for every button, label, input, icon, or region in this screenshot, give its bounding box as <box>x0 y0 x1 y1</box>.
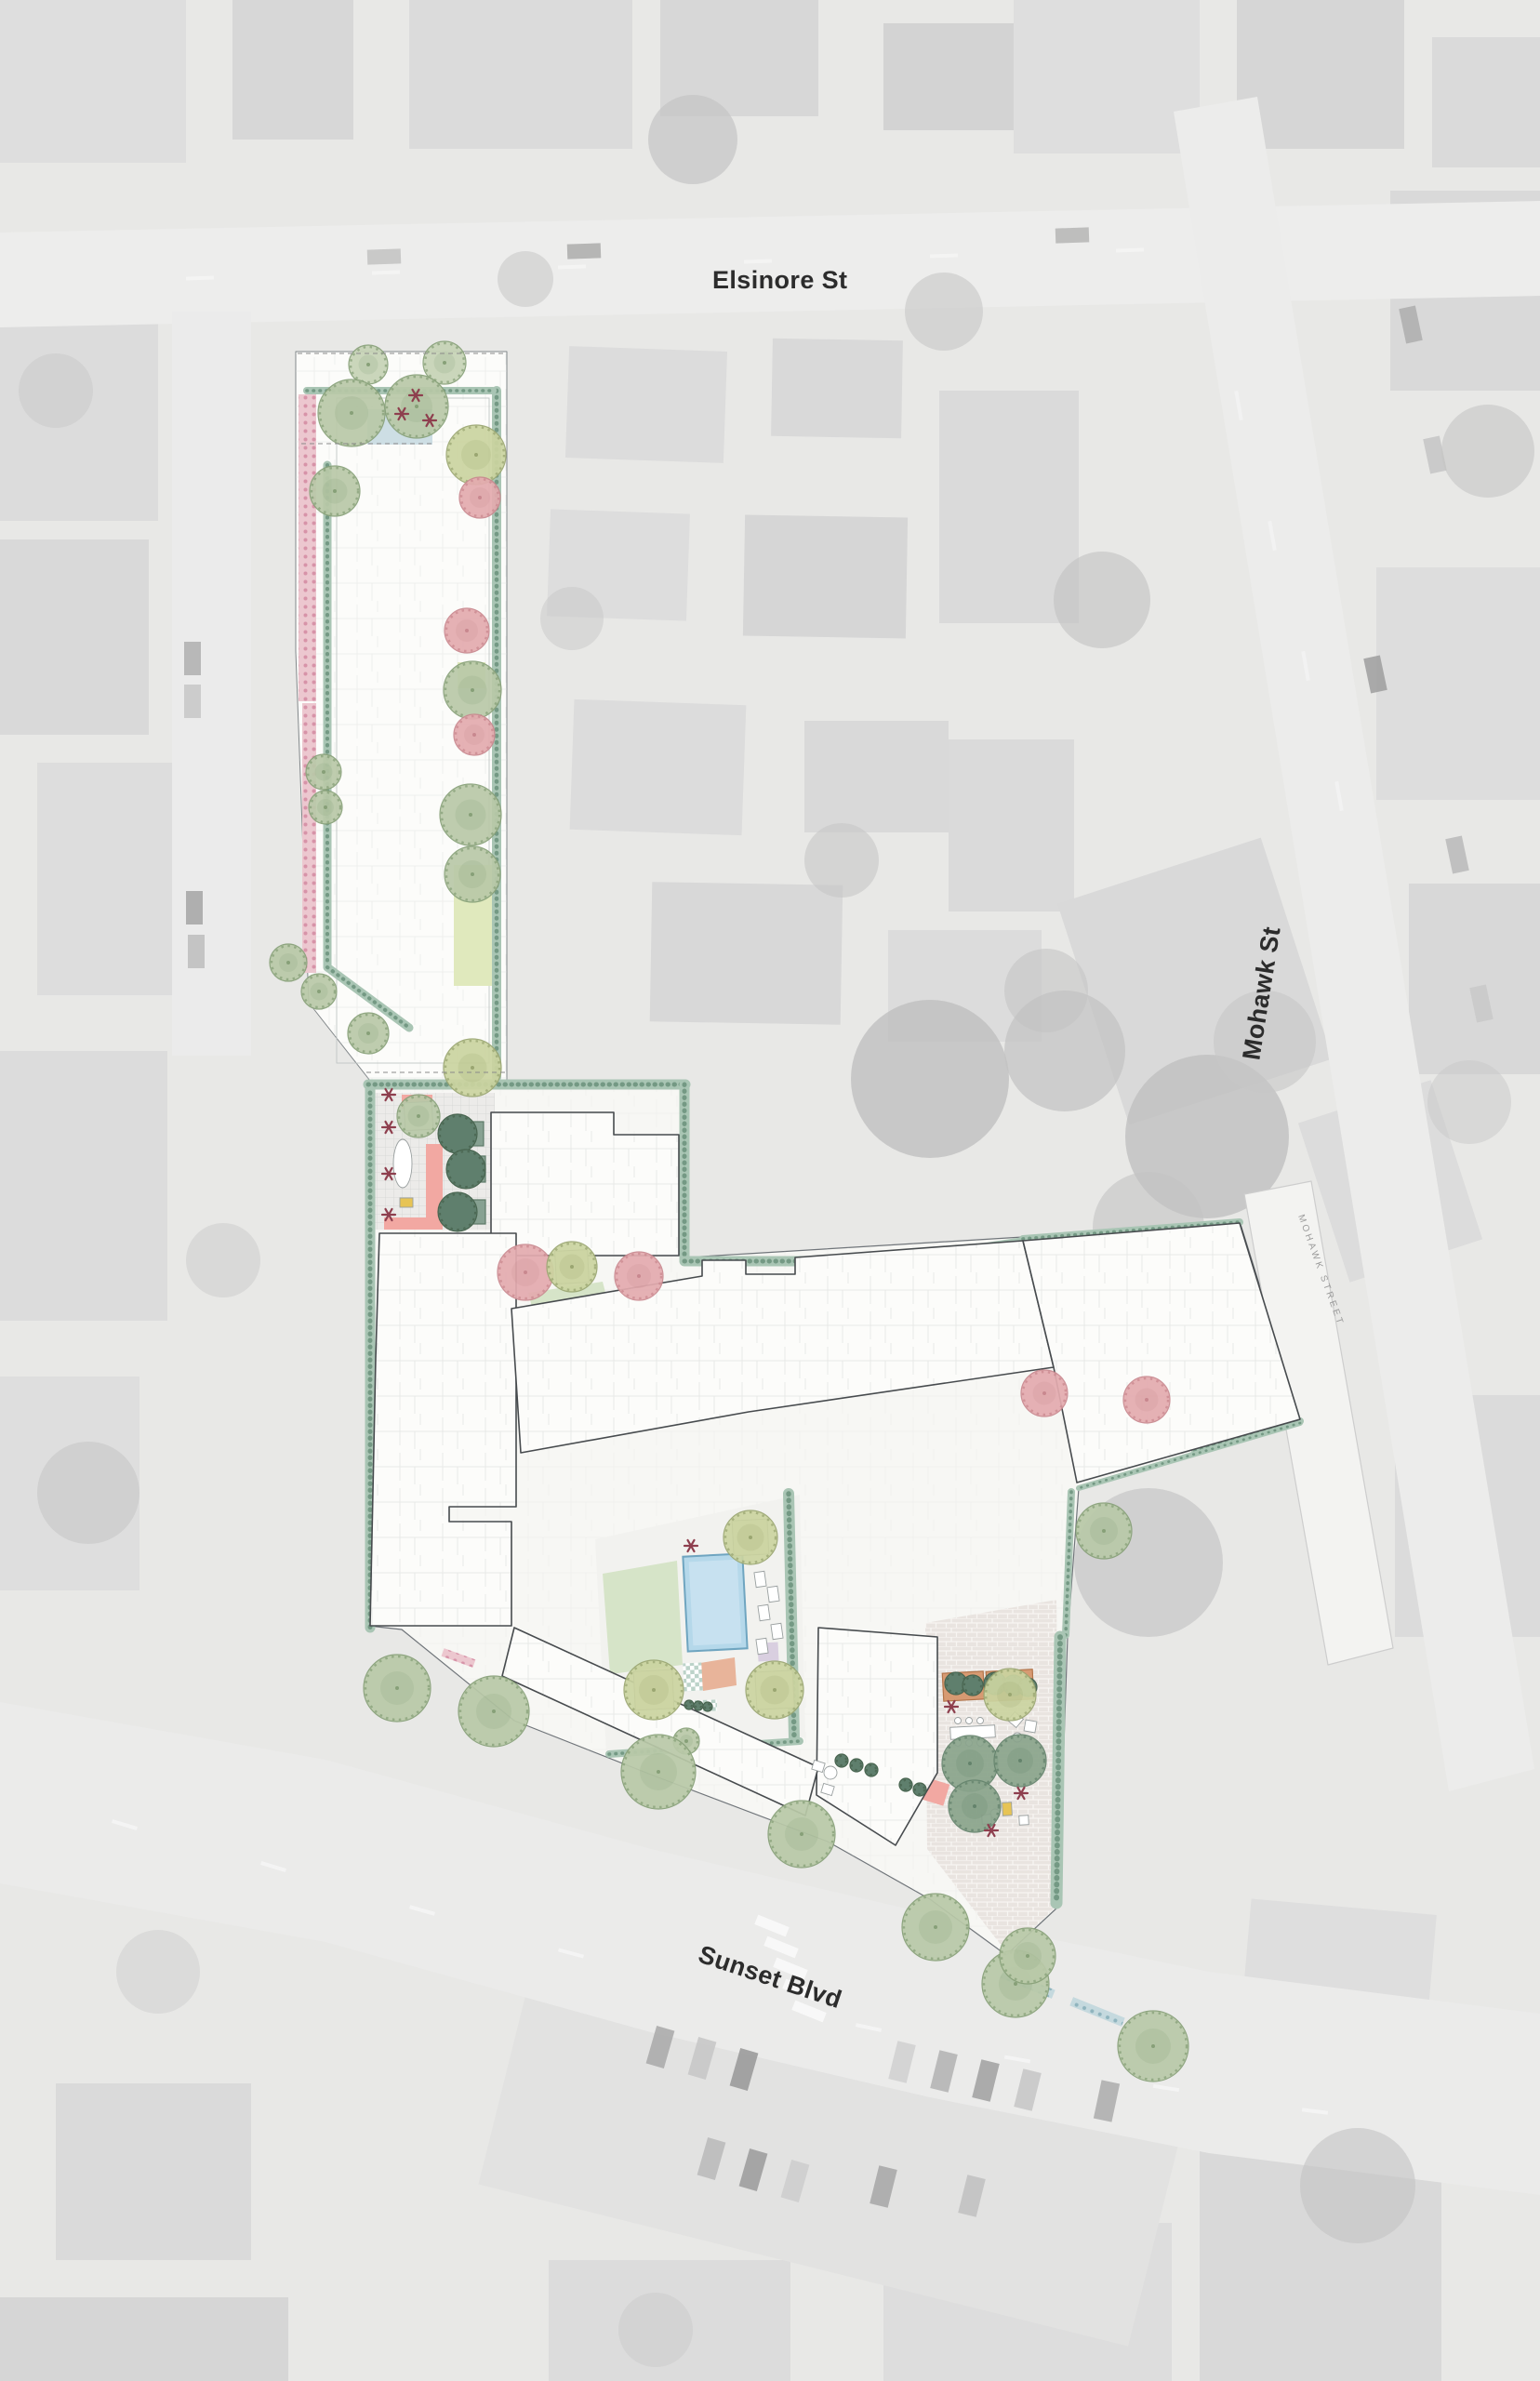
site-plan-drawing <box>0 0 1540 2381</box>
site-plan-canvas: Elsinore St Mohawk St Sunset Blvd MOHAWK… <box>0 0 1540 2381</box>
street-label-elsinore: Elsinore St <box>712 266 847 295</box>
